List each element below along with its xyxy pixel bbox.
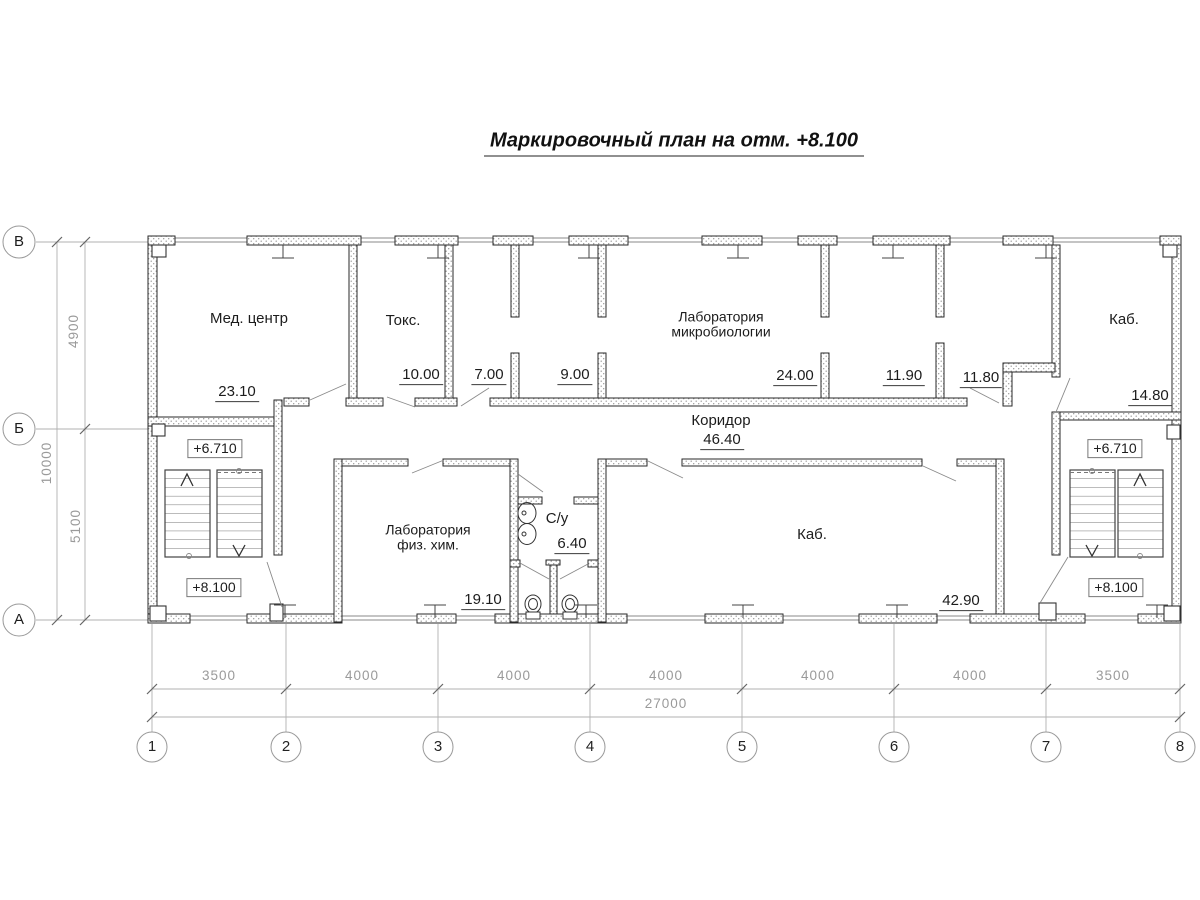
area-label-kab-top: 14.80 [1128,387,1172,406]
dim-label-10000: 10000 [40,442,54,485]
frame-marks [150,245,1180,621]
door-swings [267,378,1070,607]
dim-label-span-4: 4000 [649,669,683,683]
room-label-corridor: Коридор [691,413,750,429]
axis-circle-6: 6 [890,739,898,755]
dim-label-span-1: 3500 [202,669,236,683]
stairs-right [1070,469,1163,559]
window-lines [148,238,1181,620]
area-label-room-11-80: 11.80 [960,369,1002,388]
elevation-badge-left-lower: +8.100 [186,578,241,597]
axis-circle-a: А [14,612,24,628]
dim-label-4900: 4900 [67,314,81,348]
dim-label-span-3: 4000 [497,669,531,683]
elevation-badge-right-lower: +8.100 [1088,578,1143,597]
walls [148,236,1181,623]
area-label-room-11-90: 11.90 [883,367,925,386]
room-label-med-center: Мед. центр [210,311,288,327]
elevation-badge-left-upper: +6.710 [187,439,242,458]
area-label-lab-micro: 24.00 [773,367,817,386]
dim-label-span-6: 4000 [953,669,987,683]
axis-circle-4: 4 [586,739,594,755]
area-label-corridor: 46.40 [700,431,744,450]
elevation-badge-right-upper: +6.710 [1087,439,1142,458]
room-label-kab-top: Каб. [1109,312,1139,328]
area-label-toks: 10.00 [399,366,443,385]
axis-circle-3: 3 [434,739,442,755]
axis-circle-1: 1 [148,739,156,755]
area-label-room-7: 7.00 [471,366,506,385]
room-label-toks: Токс. [386,313,421,329]
area-label-su: 6.40 [554,535,589,554]
dim-label-span-5: 4000 [801,669,835,683]
dim-label-span-7: 3500 [1096,669,1130,683]
drawing-title: Маркировочный план на отм. +8.100 [484,130,864,157]
axis-circle-b: Б [14,421,24,437]
area-label-med-center: 23.10 [215,383,259,402]
stairs-left [165,469,262,559]
axis-circle-8: 8 [1176,739,1184,755]
dim-label-5100: 5100 [69,509,83,543]
area-label-lab-fiz-him: 19.10 [461,591,505,610]
room-label-su: С/у [546,511,569,527]
sink-icons [518,503,536,545]
axis-circle-5: 5 [738,739,746,755]
room-label-lab-fiz-him: Лаборатория физ. хим. [385,522,470,551]
floor-plan: Маркировочный план на отм. +8.100 Мед. ц… [0,0,1200,900]
axis-circle-7: 7 [1042,739,1050,755]
dim-label-span-2: 4000 [345,669,379,683]
room-label-lab-micro: Лаборатория микробиологии [671,309,770,338]
room-label-kab-bottom: Каб. [797,527,827,543]
area-label-room-9: 9.00 [557,366,592,385]
area-label-kab-bottom: 42.90 [939,592,983,611]
axis-circle-v: В [14,234,24,250]
axis-circle-2: 2 [282,739,290,755]
dim-label-total: 27000 [645,697,688,711]
